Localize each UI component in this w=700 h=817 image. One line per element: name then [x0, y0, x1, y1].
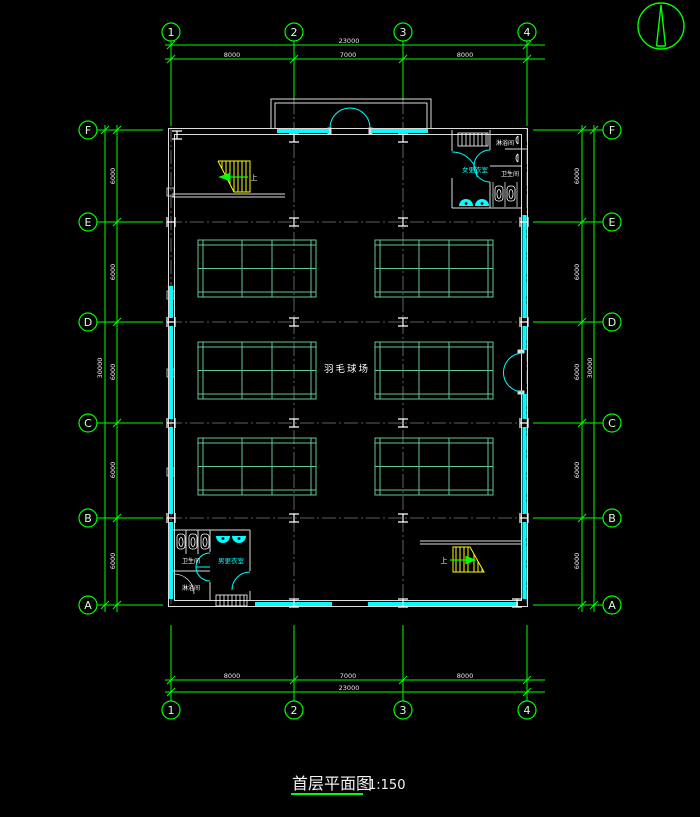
- dim-bottom-seg3: 8000: [457, 672, 474, 680]
- men-room-door: [232, 572, 250, 590]
- toilet-label-nw: 卫生间: [501, 170, 519, 178]
- squat-toilet: [189, 534, 197, 549]
- dimension-text-top: 23000 8000 7000 8000: [224, 37, 474, 59]
- dim-left-seg1: 6000: [109, 168, 117, 185]
- vestibule-wall-inner: [275, 103, 427, 128]
- cad-floorplan-canvas: 23000 8000 7000 8000 8000 7000 8000 2300…: [0, 0, 700, 817]
- grid-row-c-right: C: [608, 417, 616, 430]
- dim-top-seg2: 7000: [340, 51, 357, 59]
- grid-col-4-top: 4: [524, 26, 531, 39]
- dim-left-seg4: 6000: [109, 462, 117, 479]
- dim-top-seg3: 8000: [457, 51, 474, 59]
- grid-row-c-left: C: [84, 417, 92, 430]
- side-double-door: [504, 353, 524, 392]
- badminton-court-2: [375, 240, 493, 297]
- shower-head: [516, 136, 518, 144]
- stairs-bottom-right: 上: [441, 547, 485, 572]
- shower-label-nw: 淋浴间: [496, 139, 514, 147]
- drawing-scale: 1:150: [368, 778, 405, 793]
- building-walls: [167, 99, 528, 607]
- grid-row-b-right: B: [608, 512, 616, 525]
- dim-left-seg5: 6000: [109, 553, 117, 570]
- women-toilet-stalls: [493, 182, 517, 207]
- grid-col-1-bottom: 1: [168, 704, 175, 717]
- dim-left-seg2: 6000: [109, 264, 117, 281]
- side-door-jamb-top: [518, 350, 524, 353]
- dimension-text-left: 6000 6000 6000 6000 6000 30000: [96, 168, 117, 570]
- title-underline: [291, 793, 363, 795]
- drawing-title: 首层平面图: [292, 774, 372, 793]
- squat-toilet: [507, 186, 515, 201]
- grid-row-d-right: D: [608, 316, 616, 329]
- shower-label-sw: 淋浴间: [182, 584, 200, 592]
- floorplan-drawing: 23000 8000 7000 8000 8000 7000 8000 2300…: [0, 0, 700, 817]
- grid-row-a-left: A: [84, 599, 92, 612]
- dim-right-seg1: 6000: [573, 168, 581, 185]
- grid-row-a-right: A: [608, 599, 616, 612]
- dim-left-seg3: 6000: [109, 364, 117, 381]
- wash-basin: [232, 536, 246, 543]
- north-arrow-icon: [638, 3, 684, 49]
- squat-toilet: [201, 534, 209, 549]
- wash-basin: [475, 199, 489, 206]
- dim-right-total: 30000: [586, 358, 594, 379]
- grid-col-2-top: 2: [291, 26, 298, 39]
- stair2-up-label: 上: [441, 556, 448, 565]
- stair2-landing-wall: [420, 541, 521, 544]
- room-labels: 羽毛球场 女更衣室 男更衣室 淋浴间 卫生间 卫生间 淋浴间: [182, 139, 519, 592]
- stair1-landing-wall: [172, 194, 285, 197]
- squat-toilet: [177, 534, 185, 549]
- dim-top-total: 23000: [339, 37, 360, 45]
- dim-bottom-total: 23000: [339, 684, 360, 692]
- dim-bottom-seg2: 7000: [340, 672, 357, 680]
- squat-toilet: [495, 186, 503, 201]
- title-block: 首层平面图 1:150: [291, 774, 405, 795]
- dim-top-seg1: 8000: [224, 51, 241, 59]
- badminton-court-6: [375, 438, 493, 495]
- badminton-court-3: [198, 342, 316, 399]
- court-label: 羽毛球场: [324, 363, 370, 375]
- grid-col-3-bottom: 3: [400, 704, 407, 717]
- badminton-court-5: [198, 438, 316, 495]
- dim-left-total: 30000: [96, 358, 104, 379]
- dim-bottom-seg1: 8000: [224, 672, 241, 680]
- wash-basin: [459, 199, 473, 206]
- grid-row-b-left: B: [84, 512, 92, 525]
- grid-col-1-top: 1: [168, 26, 175, 39]
- toilet-label-sw: 卫生间: [182, 557, 200, 565]
- women-changing-label: 女更衣室: [462, 165, 489, 174]
- grid-col-3-top: 3: [400, 26, 407, 39]
- grid-row-d-left: D: [84, 316, 92, 329]
- grid-row-f-left: F: [85, 124, 91, 137]
- badminton-court-4: [375, 342, 493, 399]
- dimension-text-bottom: 8000 7000 8000 23000: [224, 672, 474, 692]
- stair1-up-label: 上: [251, 173, 258, 182]
- dim-right-seg5: 6000: [573, 553, 581, 570]
- grid-row-e-left: E: [85, 216, 92, 229]
- grid-col-2-bottom: 2: [291, 704, 298, 717]
- entrance-double-door: [330, 108, 370, 128]
- dimension-text-right: 6000 6000 6000 6000 6000 30000: [573, 168, 594, 570]
- dim-right-seg2: 6000: [573, 264, 581, 281]
- men-changing-label: 男更衣室: [218, 556, 245, 565]
- dim-right-seg4: 6000: [573, 462, 581, 479]
- grid-col-4-bottom: 4: [524, 704, 531, 717]
- grid-row-e-right: E: [609, 216, 616, 229]
- wash-basin: [216, 536, 230, 543]
- stairs-top-left: 上: [218, 161, 258, 192]
- dim-right-seg3: 6000: [573, 364, 581, 381]
- badminton-court-1: [198, 240, 316, 297]
- shower-head: [516, 154, 518, 162]
- grid-row-f-right: F: [609, 124, 615, 137]
